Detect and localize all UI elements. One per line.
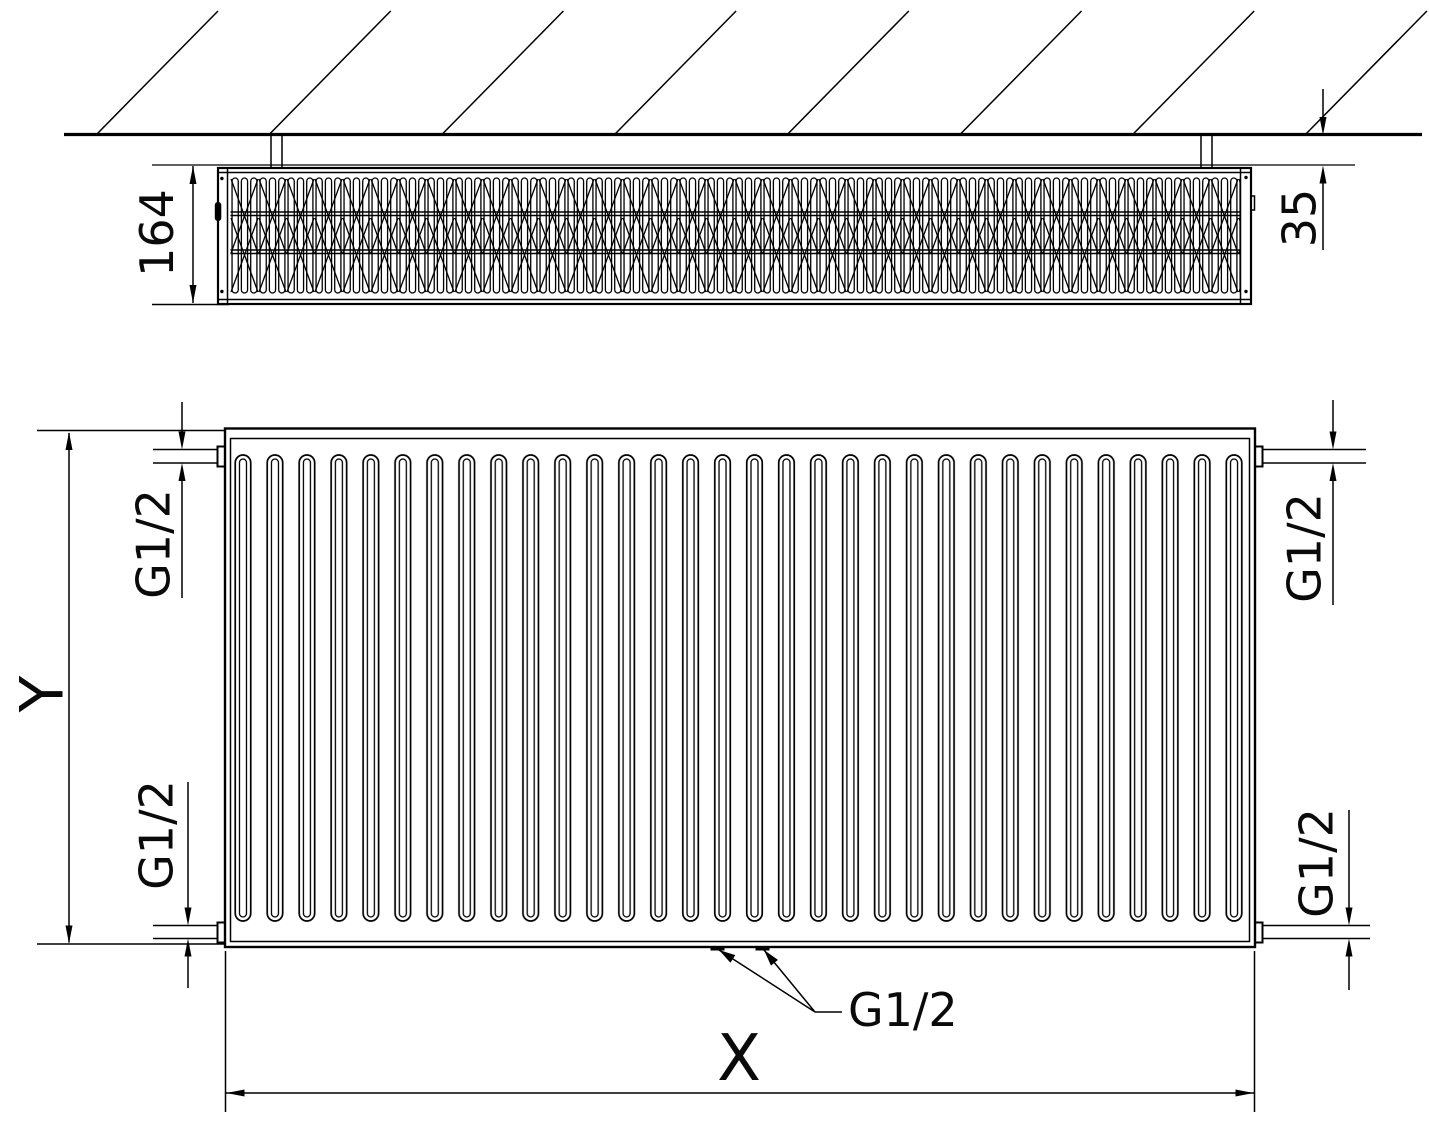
wall-bracket-left (271, 136, 282, 169)
thread-label-bottom-center: G1/2 (848, 983, 958, 1037)
thread-label-bottom-right: G1/2 (1290, 808, 1344, 918)
thread-label-top-right: G1/2 (1278, 493, 1332, 603)
thread-dim-top-left: G1/2 (127, 402, 186, 599)
radiator-top-view (152, 165, 1355, 304)
screw-dot (1244, 290, 1247, 293)
wall-bracket-right (1201, 136, 1212, 169)
dimension-length-X: X (226, 951, 1255, 1112)
dimension-depth-164: 164 (130, 166, 229, 305)
dimension-wall-distance-35: 35 (1273, 89, 1327, 250)
length-dimension-label: X (717, 1022, 761, 1096)
screw-dot (220, 290, 223, 293)
screw-dot (220, 177, 223, 180)
thread-dim-top-right: G1/2 (1278, 400, 1337, 605)
depth-dimension-label: 164 (130, 189, 184, 277)
wall-hatch-lines (96, 11, 1427, 135)
convector-fin-pattern (231, 177, 1241, 297)
screw-dot (1244, 176, 1247, 179)
bottom-connection-tab (756, 947, 770, 951)
thread-dim-bottom-left: G1/2 (130, 780, 192, 988)
pipe-stub-bottom-right (1255, 923, 1370, 943)
thread-label-bottom-left: G1/2 (130, 780, 184, 890)
pipe-stub-top-left (153, 447, 225, 467)
side-connection-left (215, 202, 222, 221)
pipe-stub-top-right (1255, 447, 1366, 467)
bottom-connection-tab (711, 947, 725, 951)
radiator-technical-drawing: 164 35 (0, 0, 1429, 1131)
thread-dim-bottom-right: G1/2 (1290, 808, 1353, 990)
thread-label-top-left: G1/2 (127, 489, 181, 599)
front-panel-ribs (227, 450, 1250, 925)
drawing-svg: 164 35 (0, 0, 1429, 1131)
dimension-height-Y: Y (8, 431, 226, 945)
pipe-stub-bottom-left (153, 923, 225, 943)
height-dimension-label: Y (8, 675, 78, 713)
wall-distance-dimension-label: 35 (1273, 189, 1327, 248)
radiator-front-view (153, 429, 1370, 951)
side-connection-right (1251, 196, 1255, 210)
